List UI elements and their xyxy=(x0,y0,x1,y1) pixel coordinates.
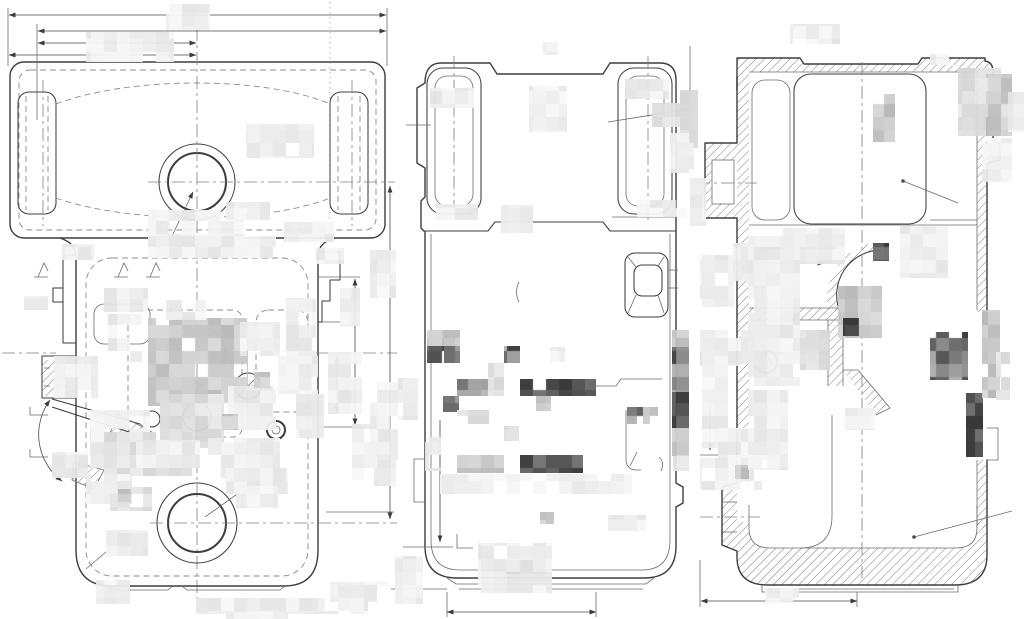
plan-roughness-symbols xyxy=(34,263,160,277)
section-leader xyxy=(914,511,1012,537)
front-leader xyxy=(596,379,662,386)
section-base-plate xyxy=(762,585,958,592)
plan-bore-leader xyxy=(172,192,193,236)
front-outline xyxy=(417,63,683,578)
plan-hidden-bore xyxy=(166,326,226,386)
drawing-sheet xyxy=(0,0,1024,619)
section-boss-hole xyxy=(712,160,734,204)
section-view xyxy=(697,58,1012,607)
plan-hole-3 xyxy=(144,411,160,427)
section-chamber-left xyxy=(752,80,790,220)
front-base-plate xyxy=(447,578,654,589)
front-mid-contour xyxy=(425,222,676,231)
plan-hole-4 xyxy=(267,421,285,439)
plan-view xyxy=(2,2,397,602)
plan-left-tab xyxy=(53,255,76,343)
front-view xyxy=(391,46,722,617)
section-chamber-main xyxy=(794,74,926,224)
plan-right-tab xyxy=(318,252,340,322)
drawing-svg xyxy=(0,0,1024,619)
plan-right-pad xyxy=(330,92,368,214)
plan-datum-ticks xyxy=(30,407,48,457)
plan-pocket-hidden xyxy=(128,310,242,437)
section-port xyxy=(755,351,777,373)
plan-flange-hidden-edge xyxy=(19,70,376,230)
plan-swing-arc-dimension xyxy=(39,400,62,481)
